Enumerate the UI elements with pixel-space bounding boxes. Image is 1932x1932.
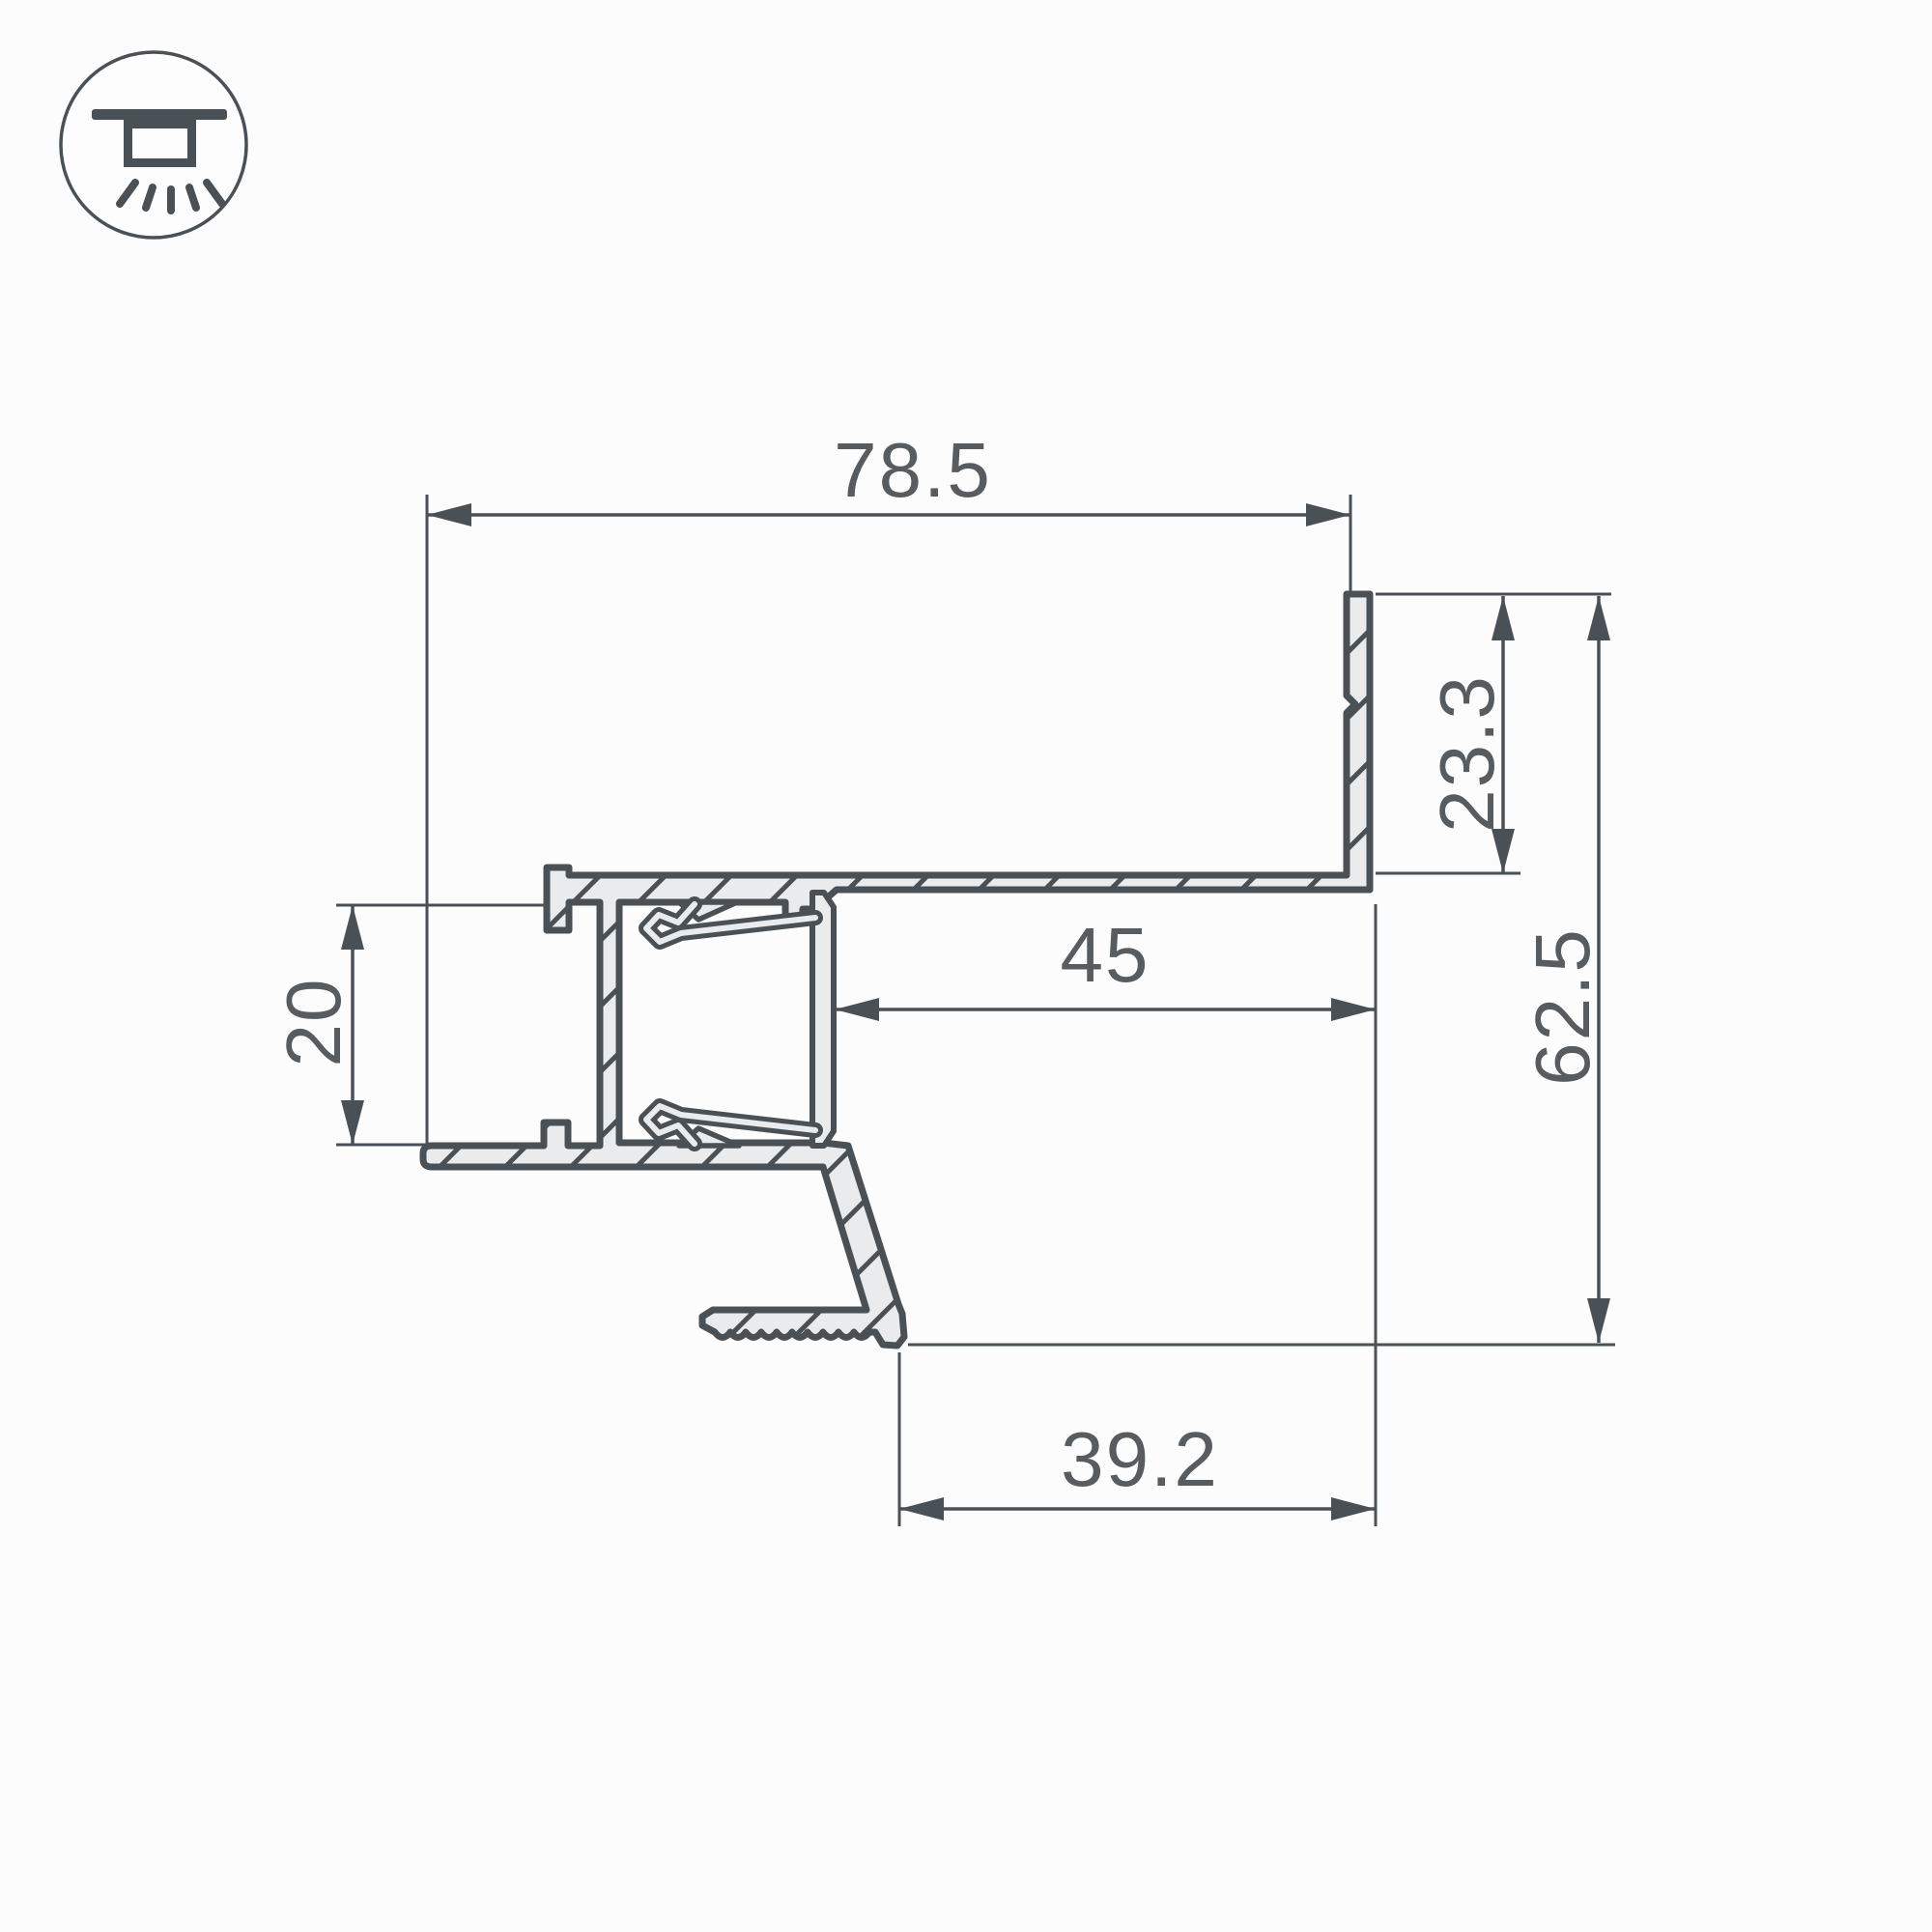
arrowhead-down-icon [1492, 829, 1515, 873]
dimension-label-78.5: 78.5 [834, 427, 992, 513]
arrowhead-up-icon [1587, 596, 1610, 640]
icon-ceiling-bar [92, 109, 227, 120]
arrowhead-left-icon [835, 998, 879, 1021]
channel-right-wall [812, 893, 834, 1146]
dimension-label-45: 45 [1061, 912, 1151, 998]
ceiling-recessed-light-icon [61, 52, 246, 238]
dimension-total-height: 62.5 [1520, 596, 1610, 1343]
profile-cross-section [423, 594, 1370, 1346]
dimension-channel-height: 20 [270, 905, 364, 1145]
dimension-label-39.2: 39.2 [1061, 1416, 1219, 1502]
arrowhead-left-icon [899, 1497, 944, 1520]
arrowhead-down-icon [1587, 1298, 1610, 1343]
dimension-flange-height: 23.3 [1424, 596, 1515, 873]
arrowhead-up-icon [1492, 596, 1515, 640]
spring-clip-bottom [646, 1106, 815, 1144]
arrowhead-down-icon [341, 1100, 364, 1145]
dimension-base-width: 39.2 [899, 1416, 1376, 1520]
dimension-recess-width: 45 [835, 912, 1376, 1021]
arrowhead-right-icon [1306, 503, 1350, 526]
icon-circle [61, 52, 246, 238]
profile-drawing-canvas: 78.5 23.3 62.5 45 20 39.2 [0, 0, 1932, 1932]
arrowhead-right-icon [1331, 1497, 1376, 1520]
arrowhead-right-icon [1331, 998, 1376, 1021]
drawing-page: 78.5 23.3 62.5 45 20 39.2 [0, 0, 1932, 1932]
dimension-total-width: 78.5 [427, 427, 1350, 526]
arrowhead-left-icon [427, 503, 471, 526]
dimension-label-20: 20 [270, 978, 356, 1067]
profile-body [423, 594, 1370, 1346]
dimension-label-62.5: 62.5 [1520, 927, 1605, 1086]
profile-body-hatching [423, 594, 1370, 1346]
arrowhead-up-icon [341, 905, 364, 950]
dimension-label-23.3: 23.3 [1424, 674, 1510, 833]
